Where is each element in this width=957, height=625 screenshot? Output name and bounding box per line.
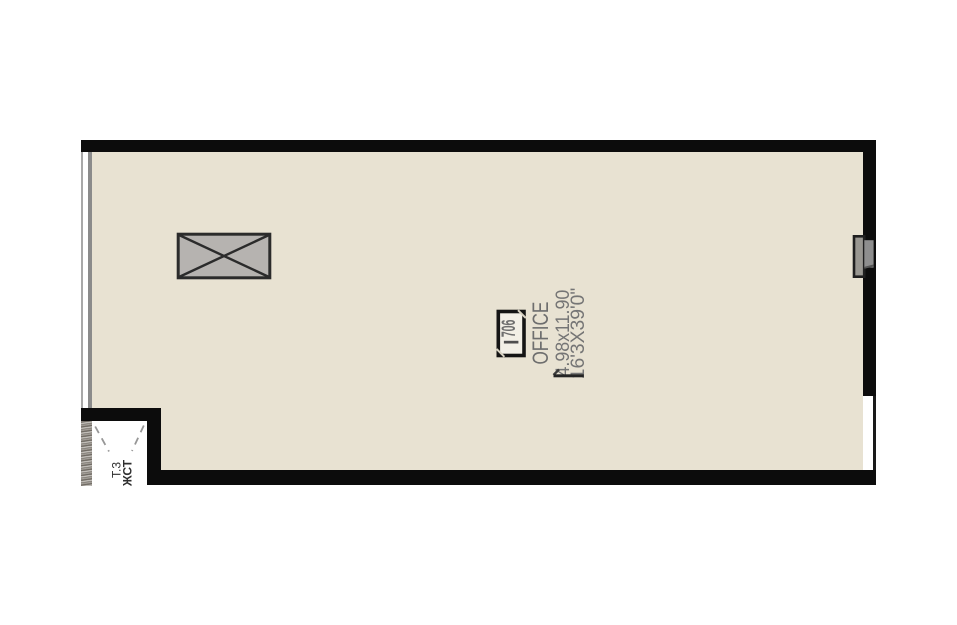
svg-text:706: 706	[499, 319, 520, 337]
svg-text:16'3X39'0": 16'3X39'0"	[567, 288, 589, 380]
